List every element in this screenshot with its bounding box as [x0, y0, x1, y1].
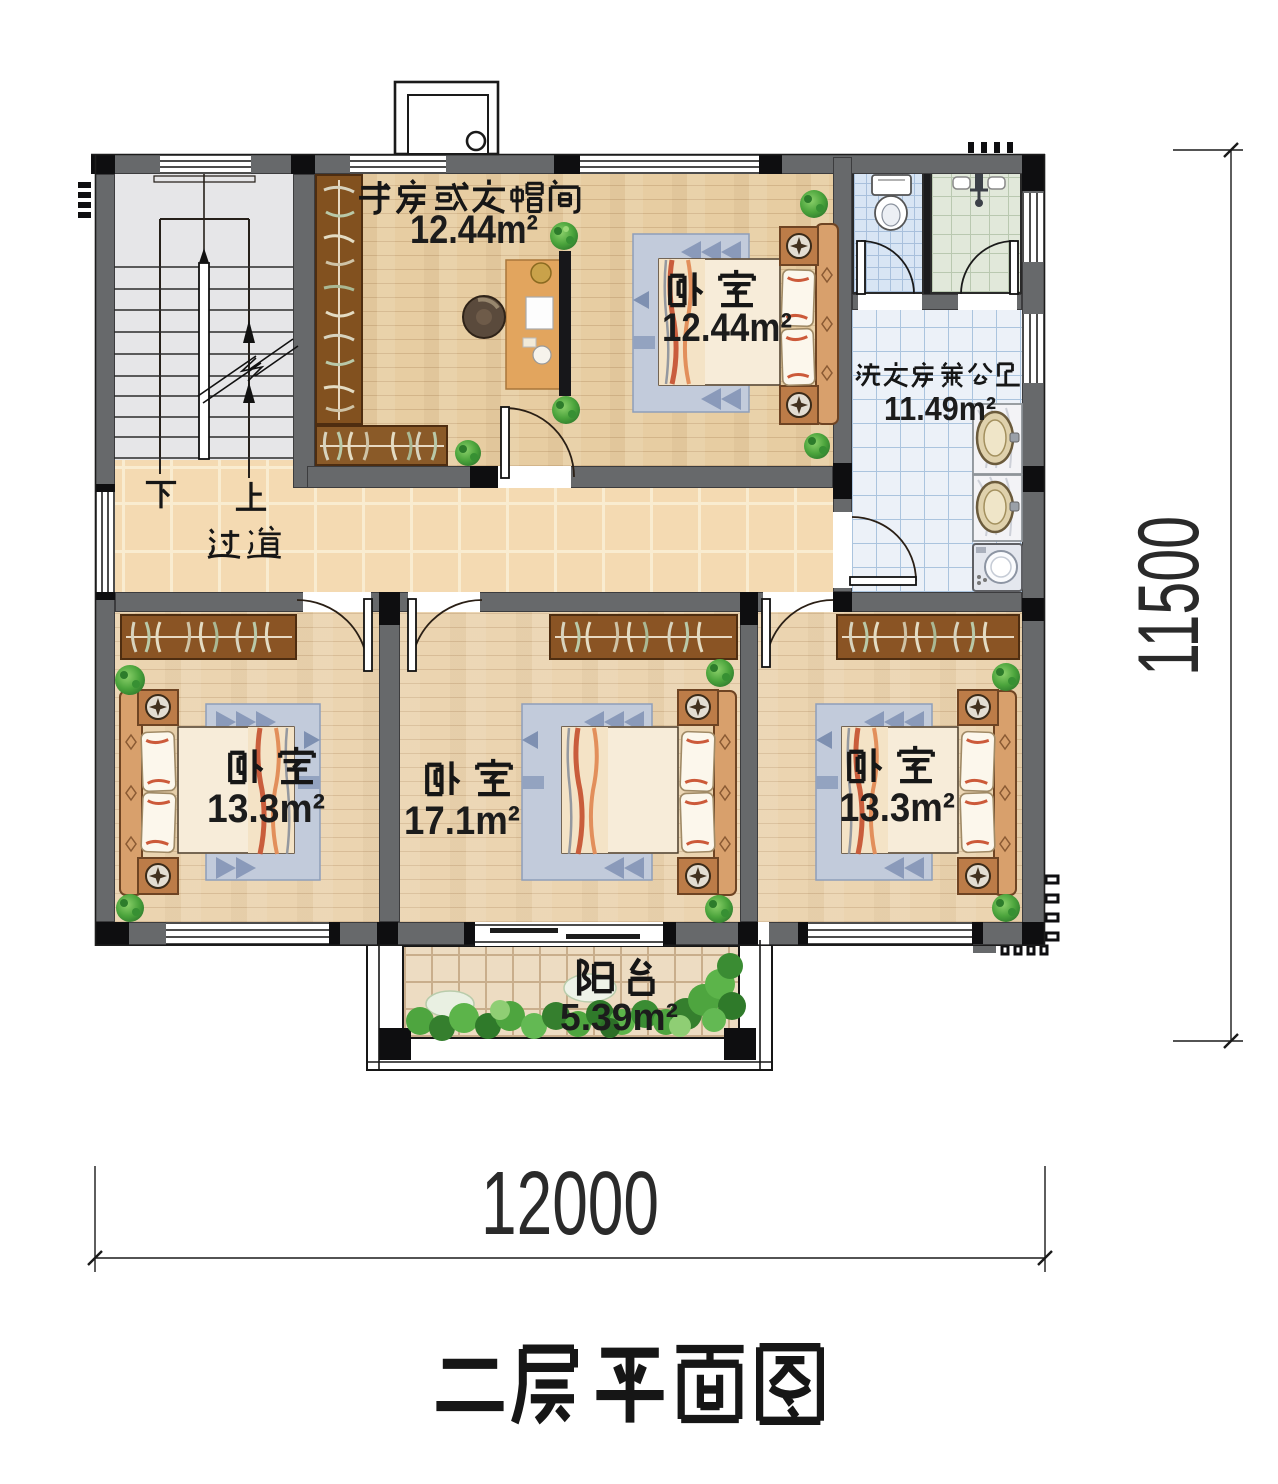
svg-text:11500: 11500 — [1121, 516, 1217, 676]
svg-text:11.49m²: 11.49m² — [884, 390, 996, 427]
svg-text:12.44m²: 12.44m² — [410, 208, 538, 252]
svg-text:13.3m²: 13.3m² — [839, 786, 955, 830]
svg-text:12.44m²: 12.44m² — [662, 306, 792, 350]
svg-text:5.39m²: 5.39m² — [560, 997, 678, 1039]
svg-text:17.1m²: 17.1m² — [404, 799, 520, 843]
svg-text:13.3m²: 13.3m² — [207, 787, 325, 831]
svg-text:12000: 12000 — [481, 1154, 659, 1254]
